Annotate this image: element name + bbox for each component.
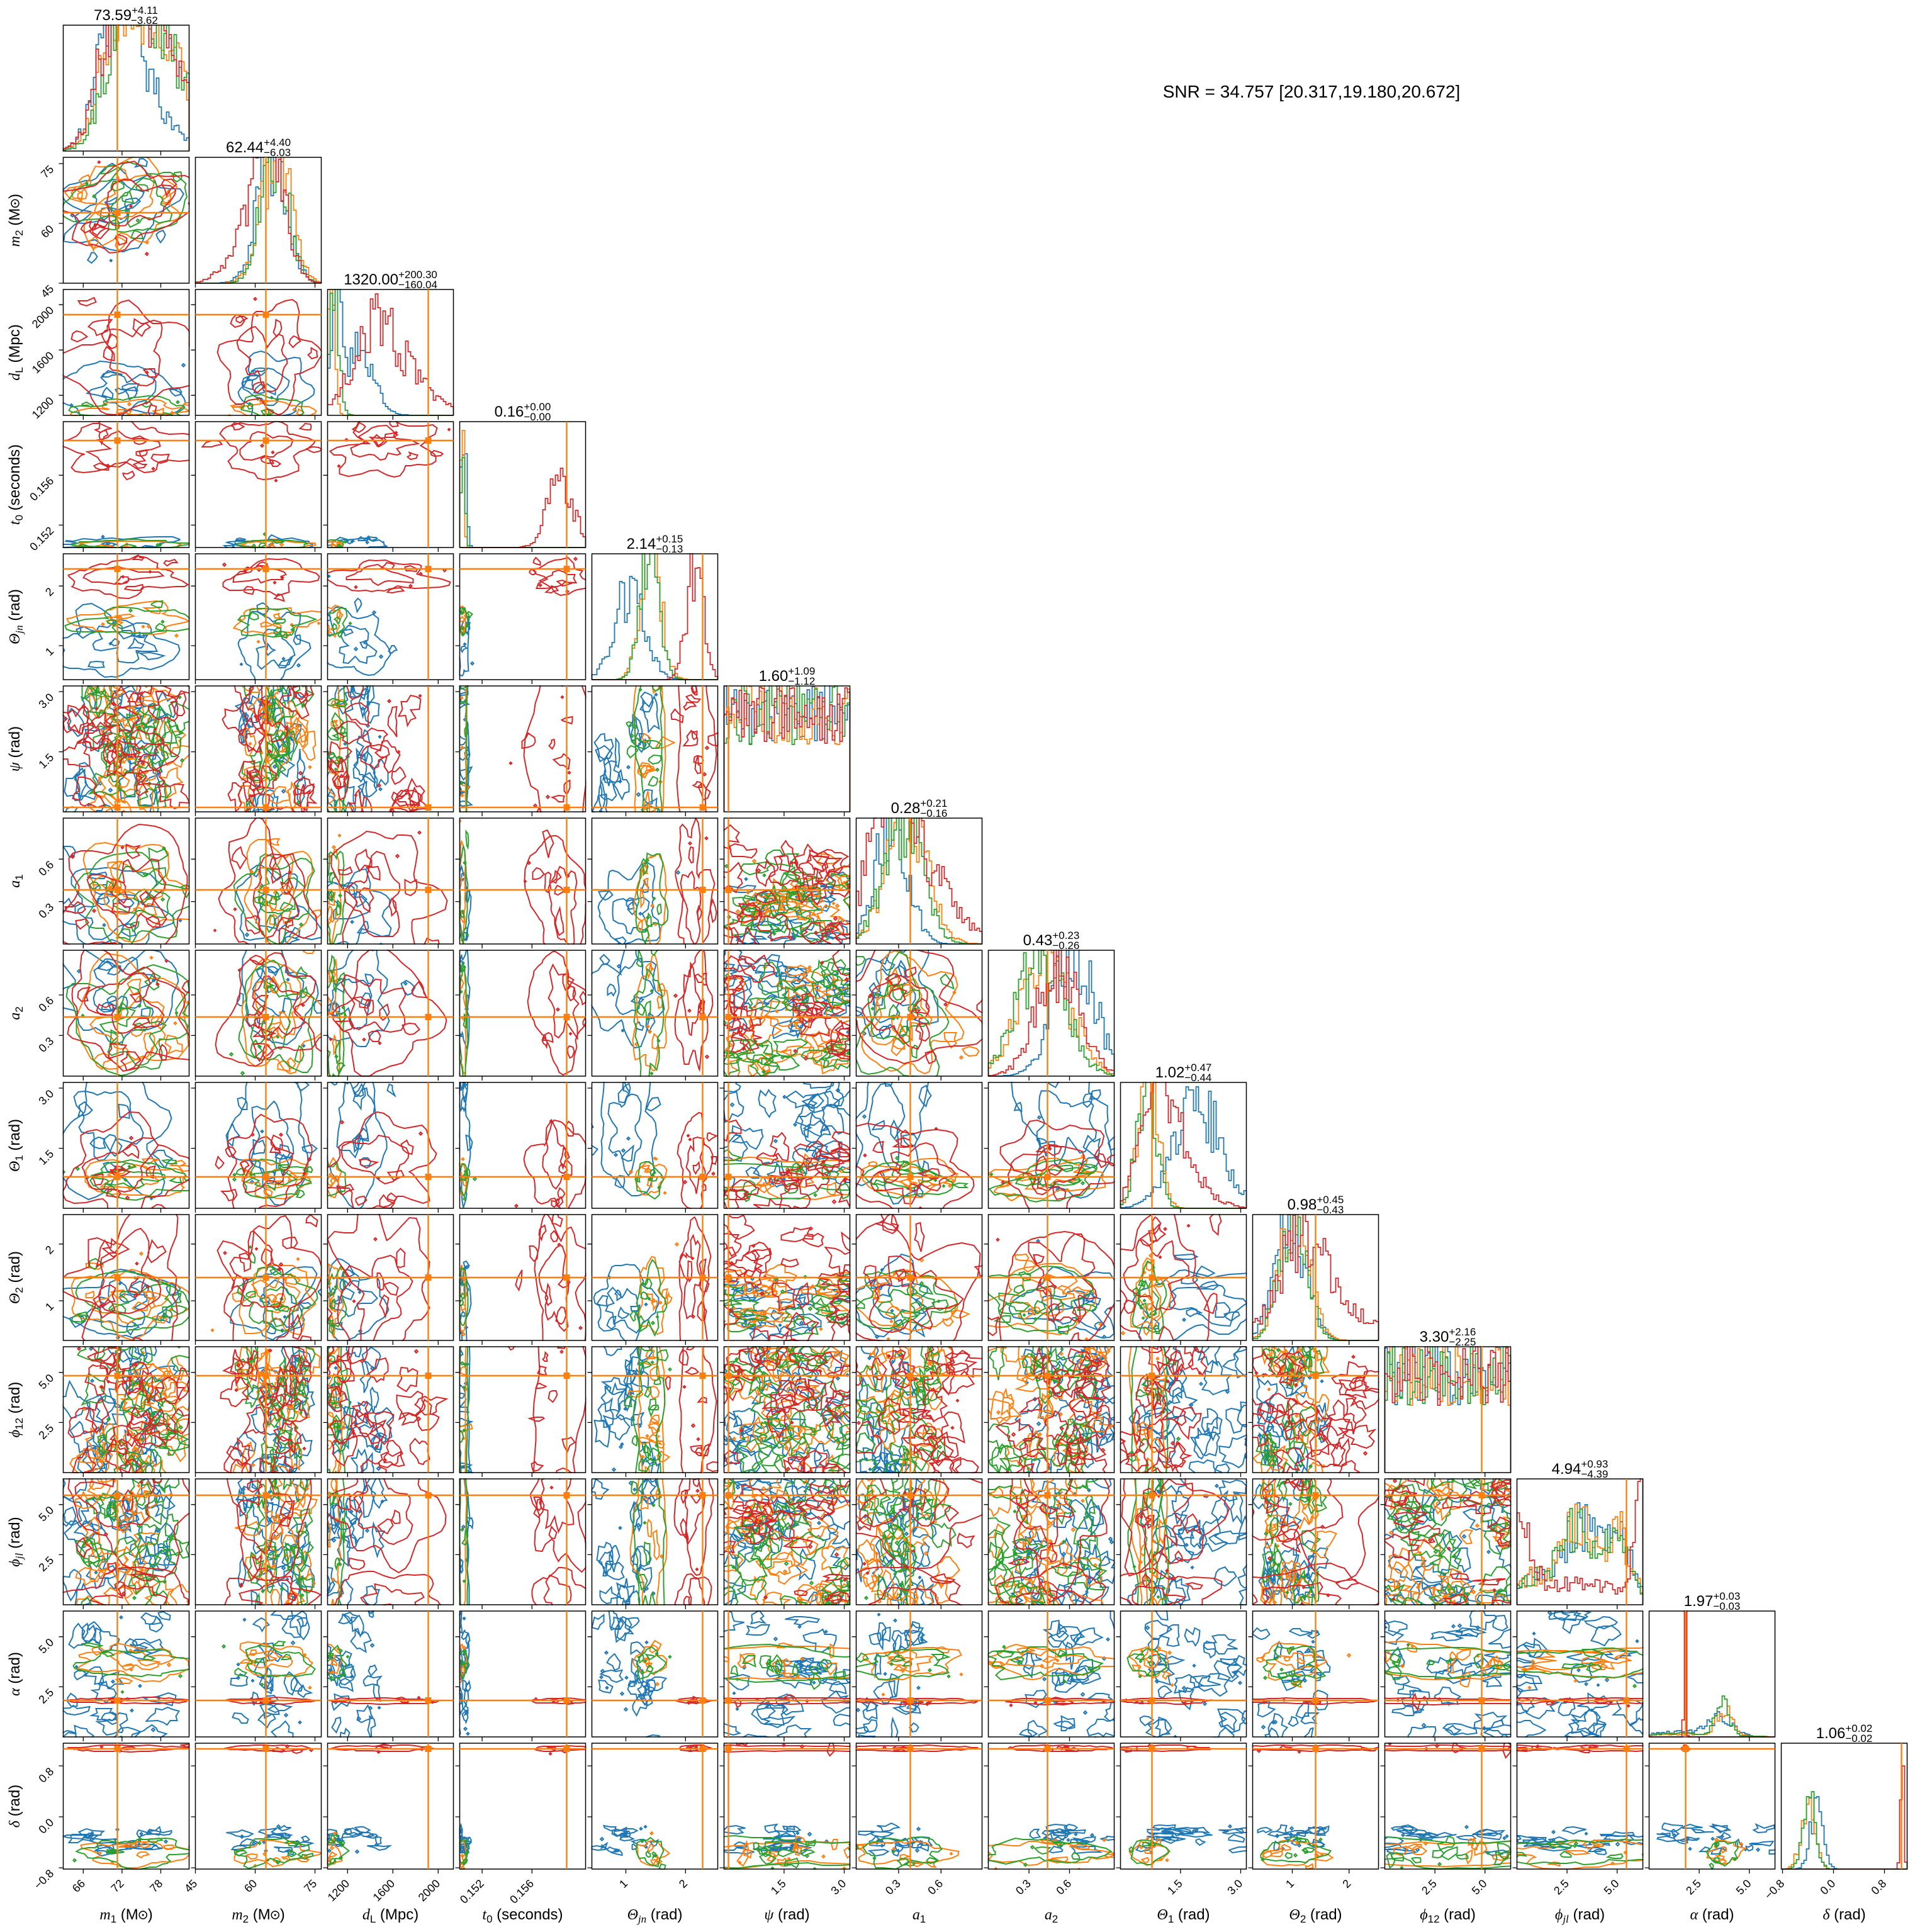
- svg-text:(Mpc): (Mpc): [6, 324, 23, 367]
- svg-text:m: m: [232, 1907, 242, 1923]
- svg-text:2: 2: [13, 230, 25, 235]
- svg-text:): ): [280, 1906, 285, 1923]
- svg-text:jn: jn: [637, 1913, 646, 1925]
- svg-text:(rad): (rad): [6, 1382, 23, 1418]
- svg-text:12: 12: [13, 1418, 25, 1430]
- svg-text:Θ: Θ: [1157, 1907, 1167, 1923]
- svg-text:(rad): (rad): [6, 1785, 23, 1821]
- svg-text:(rad): (rad): [6, 1517, 23, 1553]
- svg-text:(rad): (rad): [1829, 1906, 1865, 1923]
- svg-text:m: m: [99, 1907, 110, 1923]
- svg-text:L: L: [13, 367, 25, 373]
- svg-text:0: 0: [486, 1913, 492, 1925]
- svg-text:a: a: [913, 1907, 920, 1923]
- svg-text:1.97+0.03−0.03: 1.97+0.03−0.03: [1684, 1590, 1741, 1612]
- svg-text:Θ: Θ: [7, 634, 23, 644]
- svg-text:(rad): (rad): [773, 1906, 809, 1923]
- svg-text:(rad): (rad): [6, 1119, 23, 1155]
- svg-text:L: L: [370, 1913, 376, 1925]
- svg-text:ψ: ψ: [764, 1907, 774, 1923]
- svg-text:2.14+0.15−0.13: 2.14+0.15−0.13: [627, 533, 683, 555]
- svg-text:2: 2: [13, 1287, 25, 1293]
- svg-text:1: 1: [13, 874, 25, 880]
- svg-text:ψ: ψ: [7, 761, 23, 772]
- svg-text:jn: jn: [13, 625, 25, 634]
- svg-text:(rad): (rad): [6, 1652, 23, 1688]
- svg-text:Θ: Θ: [7, 1161, 23, 1172]
- svg-text:a: a: [7, 1013, 23, 1020]
- svg-text:(rad): (rad): [1306, 1906, 1342, 1923]
- svg-text:1.60+1.09−1.12: 1.60+1.09−1.12: [759, 665, 816, 687]
- svg-text:(rad): (rad): [6, 589, 23, 625]
- svg-text:1: 1: [13, 1155, 25, 1160]
- svg-text:α: α: [1690, 1907, 1699, 1923]
- svg-text:4.94+0.93−4.39: 4.94+0.93−4.39: [1552, 1458, 1609, 1480]
- svg-text:(seconds): (seconds): [493, 1906, 563, 1923]
- svg-text:73.59+4.11−3.62: 73.59+4.11−3.62: [94, 4, 158, 26]
- svg-text:(rad): (rad): [1174, 1906, 1210, 1923]
- svg-text:2: 2: [1052, 1913, 1058, 1925]
- svg-text:1: 1: [920, 1913, 926, 1925]
- svg-text:α: α: [7, 1688, 23, 1696]
- svg-text:1320.00+200.30−160.04: 1320.00+200.30−160.04: [344, 269, 437, 291]
- svg-text:(rad): (rad): [1440, 1906, 1476, 1923]
- svg-text:): ): [6, 194, 23, 199]
- svg-text:(rad): (rad): [6, 1251, 23, 1287]
- svg-text:): ): [148, 1906, 153, 1923]
- svg-text:a: a: [7, 880, 23, 888]
- svg-text:0.43+0.23−0.26: 0.43+0.23−0.26: [1023, 929, 1080, 952]
- svg-text:1: 1: [111, 1913, 116, 1925]
- svg-text:1.06+0.02−0.02: 1.06+0.02−0.02: [1816, 1722, 1873, 1744]
- svg-text:ϕ: ϕ: [7, 1559, 23, 1566]
- svg-text:(rad): (rad): [6, 726, 23, 762]
- svg-text:jl: jl: [13, 1553, 25, 1560]
- svg-text:(rad): (rad): [1569, 1906, 1605, 1923]
- svg-text:(M: (M: [116, 1906, 138, 1923]
- svg-text:a: a: [1045, 1907, 1052, 1923]
- svg-text:SNR = 34.757 [20.317,19.180,20: SNR = 34.757 [20.317,19.180,20.672]: [1163, 82, 1461, 101]
- svg-text:(seconds): (seconds): [6, 444, 23, 515]
- svg-text:Θ: Θ: [627, 1907, 638, 1923]
- svg-text:0: 0: [13, 515, 25, 520]
- svg-text:ϕ: ϕ: [1555, 1907, 1563, 1923]
- svg-text:(Mpc): (Mpc): [376, 1906, 418, 1923]
- svg-text:ϕ: ϕ: [1420, 1907, 1427, 1923]
- svg-text:(rad): (rad): [646, 1906, 682, 1923]
- svg-text:2: 2: [13, 1006, 25, 1012]
- svg-text:0.16+0.00−0.00: 0.16+0.00−0.00: [495, 401, 551, 423]
- svg-text:1.02+0.47−0.44: 1.02+0.47−0.44: [1155, 1062, 1212, 1084]
- svg-text:3.30+2.16−2.25: 3.30+2.16−2.25: [1420, 1326, 1476, 1348]
- svg-text:2: 2: [243, 1913, 249, 1925]
- svg-text:ϕ: ϕ: [7, 1430, 23, 1437]
- svg-text:(M: (M: [249, 1906, 271, 1923]
- svg-text:(rad): (rad): [1698, 1906, 1734, 1923]
- svg-text:12: 12: [1428, 1913, 1440, 1925]
- svg-text:2: 2: [1300, 1913, 1306, 1925]
- svg-text:1: 1: [1168, 1913, 1174, 1925]
- svg-text:0.28+0.21−0.16: 0.28+0.21−0.16: [891, 797, 948, 819]
- svg-text:(M: (M: [6, 208, 23, 230]
- svg-text:62.44+4.40−6.03: 62.44+4.40−6.03: [226, 137, 291, 159]
- svg-text:jl: jl: [1561, 1913, 1569, 1925]
- svg-text:0.98+0.45−0.43: 0.98+0.45−0.43: [1288, 1194, 1344, 1216]
- svg-text:m: m: [7, 236, 23, 247]
- svg-text:Θ: Θ: [1289, 1907, 1300, 1923]
- svg-text:Θ: Θ: [7, 1293, 23, 1304]
